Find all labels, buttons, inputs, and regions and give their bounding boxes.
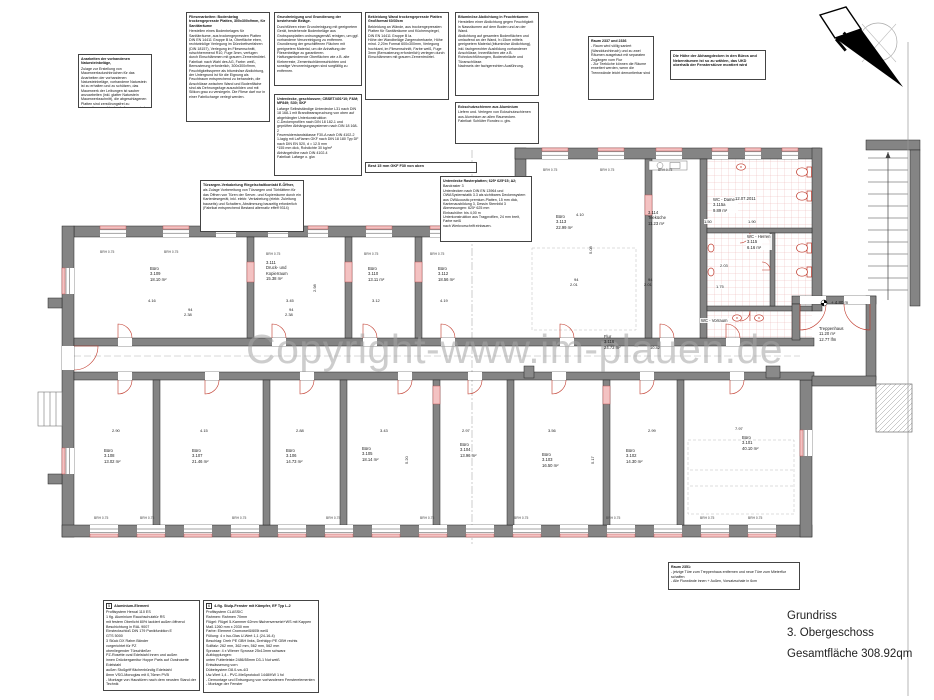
drawing-type: Grundriss (787, 608, 912, 625)
toilet-icon (797, 243, 812, 253)
north-arrow-icon: N (820, 7, 903, 87)
floor-plan-sheet: { "watermark": "Copyright-www.im-plauen.… (0, 0, 934, 700)
sink-icon (737, 164, 746, 170)
total-area: Gesamtfläche 308.92qm (787, 646, 912, 663)
title-block: Grundriss 3. Obergeschoss Gesamtfläche 3… (787, 608, 912, 663)
level-symbol (821, 300, 827, 306)
kitchen-counter (649, 161, 687, 170)
urinal-icon (708, 244, 714, 252)
toilet-icon (797, 167, 812, 177)
sink-icon (755, 315, 764, 321)
floor-name: 3. Obergeschoss (787, 625, 912, 642)
sink-icon (733, 315, 742, 321)
stair-tower (868, 152, 908, 300)
toilet-icon (797, 267, 812, 277)
copyright-watermark: Copyright-www.im-plauen.de (246, 326, 783, 373)
balcony-hatch (876, 384, 912, 432)
urinal-icon (708, 268, 714, 276)
toilet-icon (797, 191, 812, 201)
exterior-stair (38, 392, 62, 426)
